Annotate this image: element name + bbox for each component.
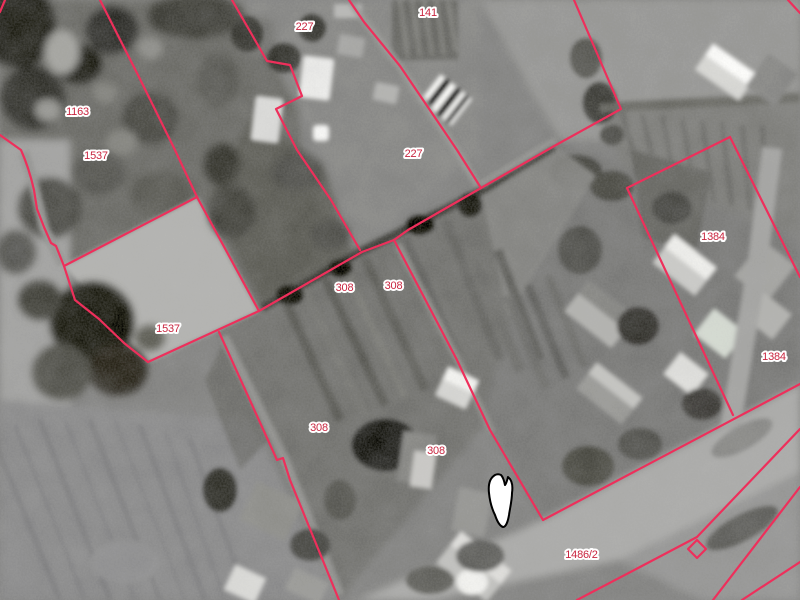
svg-text:1537: 1537 (156, 323, 180, 335)
svg-text:141: 141 (419, 7, 437, 19)
svg-text:308: 308 (336, 282, 354, 294)
svg-text:227: 227 (405, 148, 423, 160)
svg-text:227: 227 (296, 21, 314, 33)
svg-text:308: 308 (427, 445, 445, 457)
svg-text:308: 308 (310, 422, 328, 434)
svg-text:1384: 1384 (701, 231, 725, 243)
svg-text:1384: 1384 (762, 351, 786, 363)
svg-text:308: 308 (385, 280, 403, 292)
svg-text:1163: 1163 (66, 106, 89, 118)
svg-text:1537: 1537 (84, 150, 108, 162)
svg-text:1486/2: 1486/2 (565, 549, 598, 561)
